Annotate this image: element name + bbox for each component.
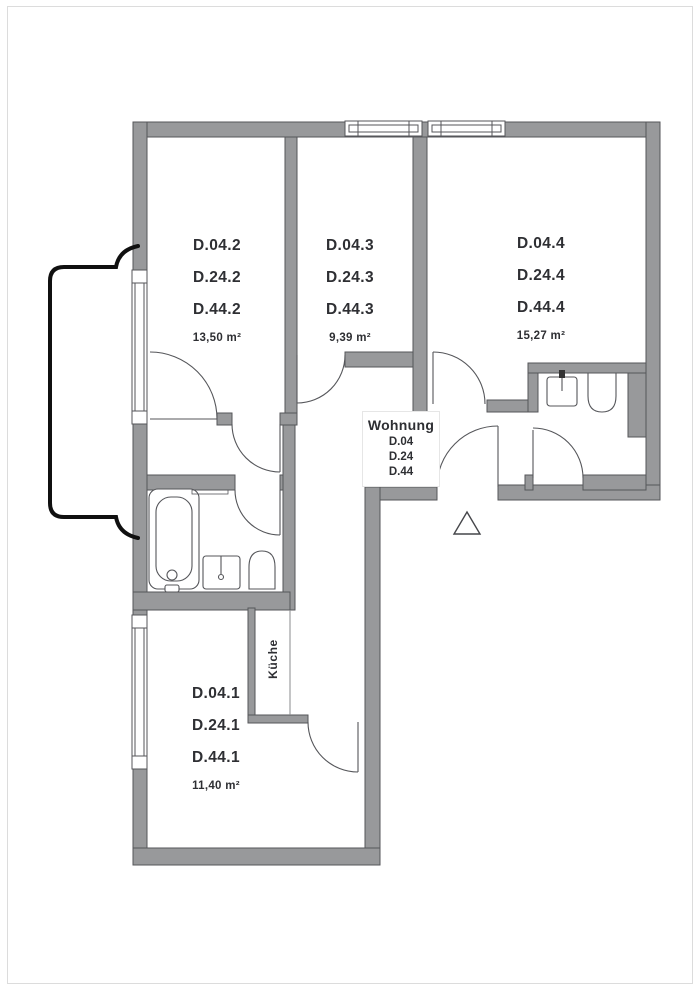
room-code: D.44.4	[461, 292, 621, 324]
apartment-unit: D.44	[363, 465, 439, 480]
wall-corridor-right	[365, 487, 380, 865]
door-room1	[308, 722, 358, 772]
washbasin1-icon	[203, 556, 240, 589]
room-code: D.04.1	[136, 678, 296, 710]
wall-room4-notch	[487, 400, 528, 412]
wall-room2-bottom-a	[217, 413, 232, 425]
toilet2-icon	[588, 373, 616, 412]
door-bath2	[533, 428, 583, 478]
window-top-right	[428, 121, 505, 136]
wall-room2-bottom-b	[280, 413, 297, 425]
room-code: D.44.1	[136, 742, 296, 774]
apartment-label-box: Wohnung D.04 D.24 D.44	[362, 411, 440, 487]
door-hall-nook	[232, 424, 280, 472]
wall-right	[646, 122, 660, 500]
room-area: 11,40 m²	[136, 780, 296, 792]
apartment-unit: D.04	[363, 435, 439, 450]
room-code: D.04.3	[270, 230, 430, 262]
room-label-d044: D.04.4 D.24.4 D.44.4 15,27 m²	[461, 228, 621, 342]
balcony-outline	[50, 246, 138, 538]
wall-bath2-right	[628, 373, 646, 437]
door-entrance	[437, 426, 498, 487]
wall-bath1-right	[283, 425, 295, 610]
windows-layer	[132, 121, 505, 769]
wall-bottom	[133, 848, 380, 865]
door-room4	[433, 352, 485, 404]
floorplan-page: D.04.2 D.24.2 D.44.2 13,50 m² D.04.3 D.2…	[0, 0, 700, 990]
room-code: D.24.4	[461, 260, 621, 292]
room-code: D.24.1	[136, 710, 296, 742]
room-code: D.44.3	[270, 294, 430, 326]
apartment-unit: D.24	[363, 450, 439, 465]
room-code: D.24.3	[270, 262, 430, 294]
kitchen-label: Küche	[266, 639, 280, 679]
wall-bath1-top-a	[147, 475, 235, 490]
window-top-left	[345, 121, 422, 136]
room-code: D.04.4	[461, 228, 621, 260]
wall-bath1-bottom	[133, 592, 290, 610]
apartment-title: Wohnung	[363, 415, 439, 435]
wall-bath2-top	[528, 363, 646, 373]
wall-bath2-bottom	[583, 475, 646, 490]
entrance-triangle	[454, 512, 480, 534]
door-room2	[150, 352, 217, 419]
floorplan-drawing	[0, 0, 700, 990]
door-room3	[297, 355, 345, 403]
room-area: 15,27 m²	[461, 330, 621, 342]
bathtub-icon	[149, 489, 199, 592]
room-area: 9,39 m²	[270, 332, 430, 344]
room-label-d043: D.04.3 D.24.3 D.44.3 9,39 m²	[270, 230, 430, 344]
wall-room3-bottom	[345, 352, 413, 367]
wall-bath2-bottom-stub	[525, 475, 533, 490]
toilet1-icon	[249, 551, 275, 589]
washbasin2-icon	[547, 370, 577, 406]
door-bath1	[235, 490, 280, 535]
room-label-d041: D.04.1 D.24.1 D.44.1 11,40 m²	[136, 678, 296, 792]
